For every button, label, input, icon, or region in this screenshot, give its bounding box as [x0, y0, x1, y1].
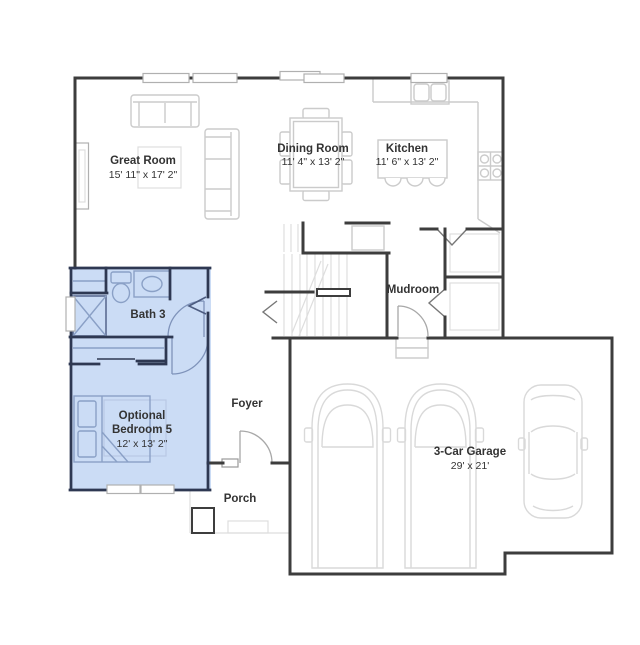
garage-entry-steps [396, 338, 428, 358]
stove [478, 152, 503, 180]
garage-label: 3-Car Garage [434, 446, 506, 458]
bath3-label: Bath 3 [130, 309, 165, 321]
garage-entry-door [398, 306, 428, 336]
window [193, 74, 237, 83]
interior-walls [208, 223, 503, 463]
window [304, 74, 344, 83]
mudroom-closets [450, 234, 499, 330]
dining-room-dims: 11' 4" x 13' 2" [282, 156, 345, 168]
bedroom-window [141, 485, 174, 494]
foyer-label: Foyer [231, 398, 263, 410]
mudroom-label: Mudroom [387, 284, 439, 296]
car-front-2 [398, 384, 484, 568]
floor-plan-page: Great Room 15' 11" x 17' 2" Dining Room … [0, 0, 640, 640]
kitchen-sink [411, 81, 449, 104]
porch-step [228, 521, 268, 533]
front-door [222, 431, 272, 467]
dining-room-label: Dining Room [277, 143, 349, 155]
staircase [284, 224, 384, 336]
porch-label: Porch [224, 493, 257, 505]
window [143, 74, 189, 83]
hall-door [263, 301, 277, 323]
bedroom5-label-line2: Bedroom 5 [112, 424, 173, 436]
window [411, 74, 447, 83]
bedroom-window [107, 485, 140, 494]
stair-railing [317, 289, 350, 296]
floor-plan-svg: Great Room 15' 11" x 17' 2" Dining Room … [0, 0, 640, 640]
porch-column [192, 508, 214, 533]
sectional-sofa [205, 129, 239, 219]
bar-stools [385, 178, 445, 186]
garage-cars [305, 384, 588, 568]
great-room-dims: 15' 11" x 17' 2" [109, 169, 178, 181]
great-room-label: Great Room [110, 155, 176, 167]
kitchen-label: Kitchen [386, 143, 428, 155]
bedroom5-label-line1: Optional [119, 410, 166, 422]
stairs-closet [352, 226, 384, 250]
garage-dims: 29' x 21' [451, 460, 489, 472]
fireplace [76, 143, 89, 209]
stair-treads [284, 224, 347, 336]
bath-window [66, 297, 75, 331]
sofa [131, 95, 199, 127]
bedroom5-dims: 12' x 13' 2" [117, 438, 168, 450]
area-rug [138, 147, 181, 188]
pantry-door [437, 229, 467, 245]
car-top [519, 385, 588, 518]
car-front-1 [305, 384, 391, 568]
kitchen-dims: 11' 6" x 13' 2" [376, 156, 439, 168]
